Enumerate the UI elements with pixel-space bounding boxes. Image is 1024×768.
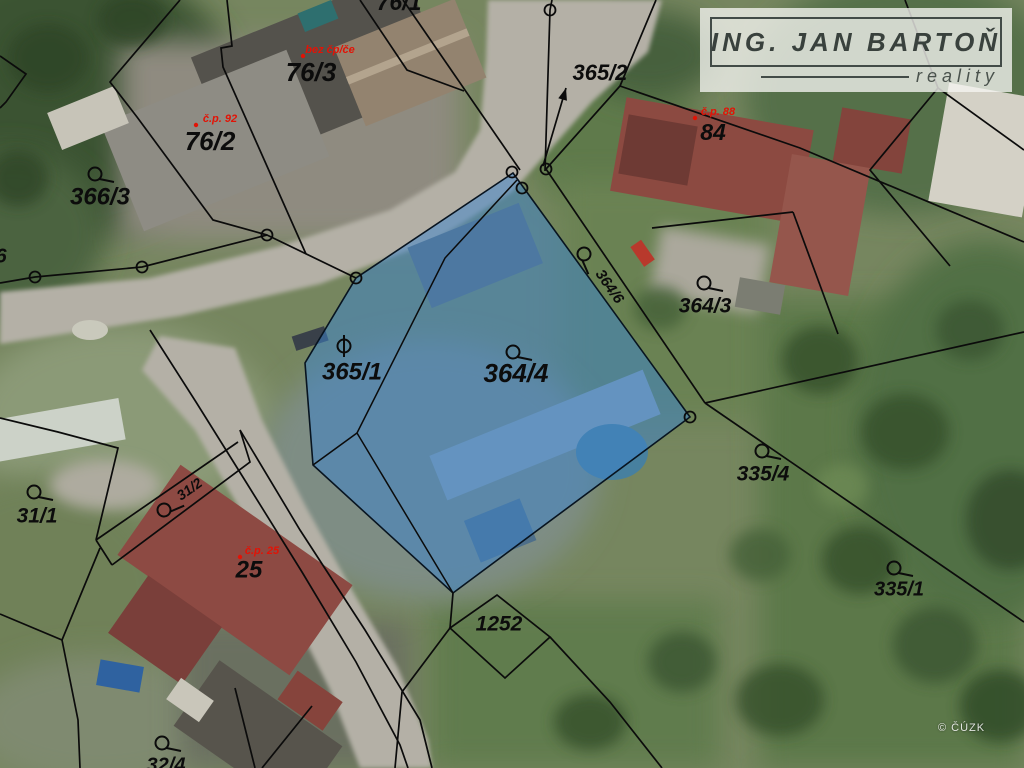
symbol-circle [756, 445, 769, 458]
road-south-edge [0, 235, 356, 283]
landuse-symbol-335-1 [888, 562, 914, 577]
corner-top-left [0, 56, 26, 108]
parcel-label-32-4: 32/4 [147, 754, 186, 768]
agency-logo-subtitle-row: reality [761, 66, 999, 87]
divider-364-3-335-4 [705, 332, 1024, 403]
parcel-label-25: 25 [235, 556, 263, 583]
house-number-dot [301, 54, 305, 58]
landuse-symbol-32-4 [156, 737, 182, 752]
bottom-left-d [262, 706, 312, 768]
right-buildings-b [870, 88, 950, 266]
cadastre-layer: 76/176/376/2366/3365/284364/6364/3365/13… [0, 0, 1024, 768]
parcel-84-north [620, 86, 1024, 242]
symbol-circle [888, 562, 901, 575]
house-number-label: č.p. 88 [701, 106, 736, 118]
cluster-76-outline [110, 0, 267, 235]
parcel-label-76-3: 76/3 [286, 57, 337, 87]
symbol-circle [156, 737, 169, 750]
parcel-label-6: 6 [0, 245, 7, 267]
agency-subtitle: reality [916, 66, 999, 87]
parcel-label-31-1: 31/1 [17, 505, 58, 528]
parcel-label-364-3: 364/3 [679, 295, 732, 318]
parcel-1252-southwest [395, 628, 450, 768]
symbol-circle [89, 168, 102, 181]
symbol-tail [39, 497, 54, 500]
parcel-label-335-4: 335/4 [737, 463, 790, 486]
parcel-364-3-north [652, 212, 793, 228]
parcel-label-365-1: 365/1 [322, 358, 382, 385]
house-number-label: č.p. 92 [203, 113, 237, 125]
parcel-label-365-2: 365/2 [572, 60, 628, 85]
house-number-dot [238, 555, 242, 559]
strip-31-2-a [96, 442, 238, 540]
symbol-circle [698, 277, 711, 290]
parcel-364-3-east [793, 212, 838, 334]
parcel-label-366-3: 366/3 [70, 183, 131, 210]
landuse-symbol-366-3 [89, 168, 115, 183]
symbol-circle [28, 486, 41, 499]
logo-rule-line [761, 76, 909, 78]
symbol-tail [100, 179, 115, 182]
parcel-1252-link [450, 593, 453, 628]
divider-335-4-335-1 [705, 403, 1024, 622]
landuse-symbol-364-3 [698, 277, 724, 292]
symbol-tail [709, 288, 724, 291]
map-copyright: © ČÚZK [938, 722, 985, 734]
parcel-label-1252: 1252 [476, 613, 523, 636]
landuse-symbol-31-1 [28, 486, 54, 501]
cadastral-map: 76/176/376/2366/3365/284364/6364/3365/13… [0, 0, 1024, 768]
arrow-head [558, 88, 567, 101]
bottom-left-b [0, 614, 62, 640]
house-number-dot [194, 123, 198, 127]
symbol-circle [155, 501, 173, 519]
house-number-dot [693, 116, 697, 120]
symbol-circle [575, 245, 593, 263]
parcel-label-335-1: 335/1 [874, 578, 924, 600]
symbol-tail [899, 573, 914, 576]
bottom-left-c [235, 688, 255, 768]
agency-logo: ING. JAN BARTOŇ reality [700, 8, 1012, 92]
house-number-label: č.p. 25 [245, 545, 280, 557]
road-north-edge [403, 0, 520, 170]
symbol-tail [767, 456, 782, 459]
parcel-label-84: 84 [700, 119, 726, 145]
bottom-left-a [62, 548, 100, 768]
house-number-label: bez čp/če [305, 44, 355, 56]
parcel-label-364-4: 364/4 [483, 358, 549, 388]
parcel-label-76-1: 76/1 [377, 0, 422, 15]
symbol-tail [167, 748, 182, 751]
parcel-label-76-2: 76/2 [185, 126, 236, 156]
parcel-335-1-west [550, 637, 662, 768]
agency-logo-frame: ING. JAN BARTOŇ [710, 17, 1002, 67]
agency-name: ING. JAN BARTOŇ [711, 27, 1001, 58]
parcel-1252-outline [450, 595, 550, 678]
